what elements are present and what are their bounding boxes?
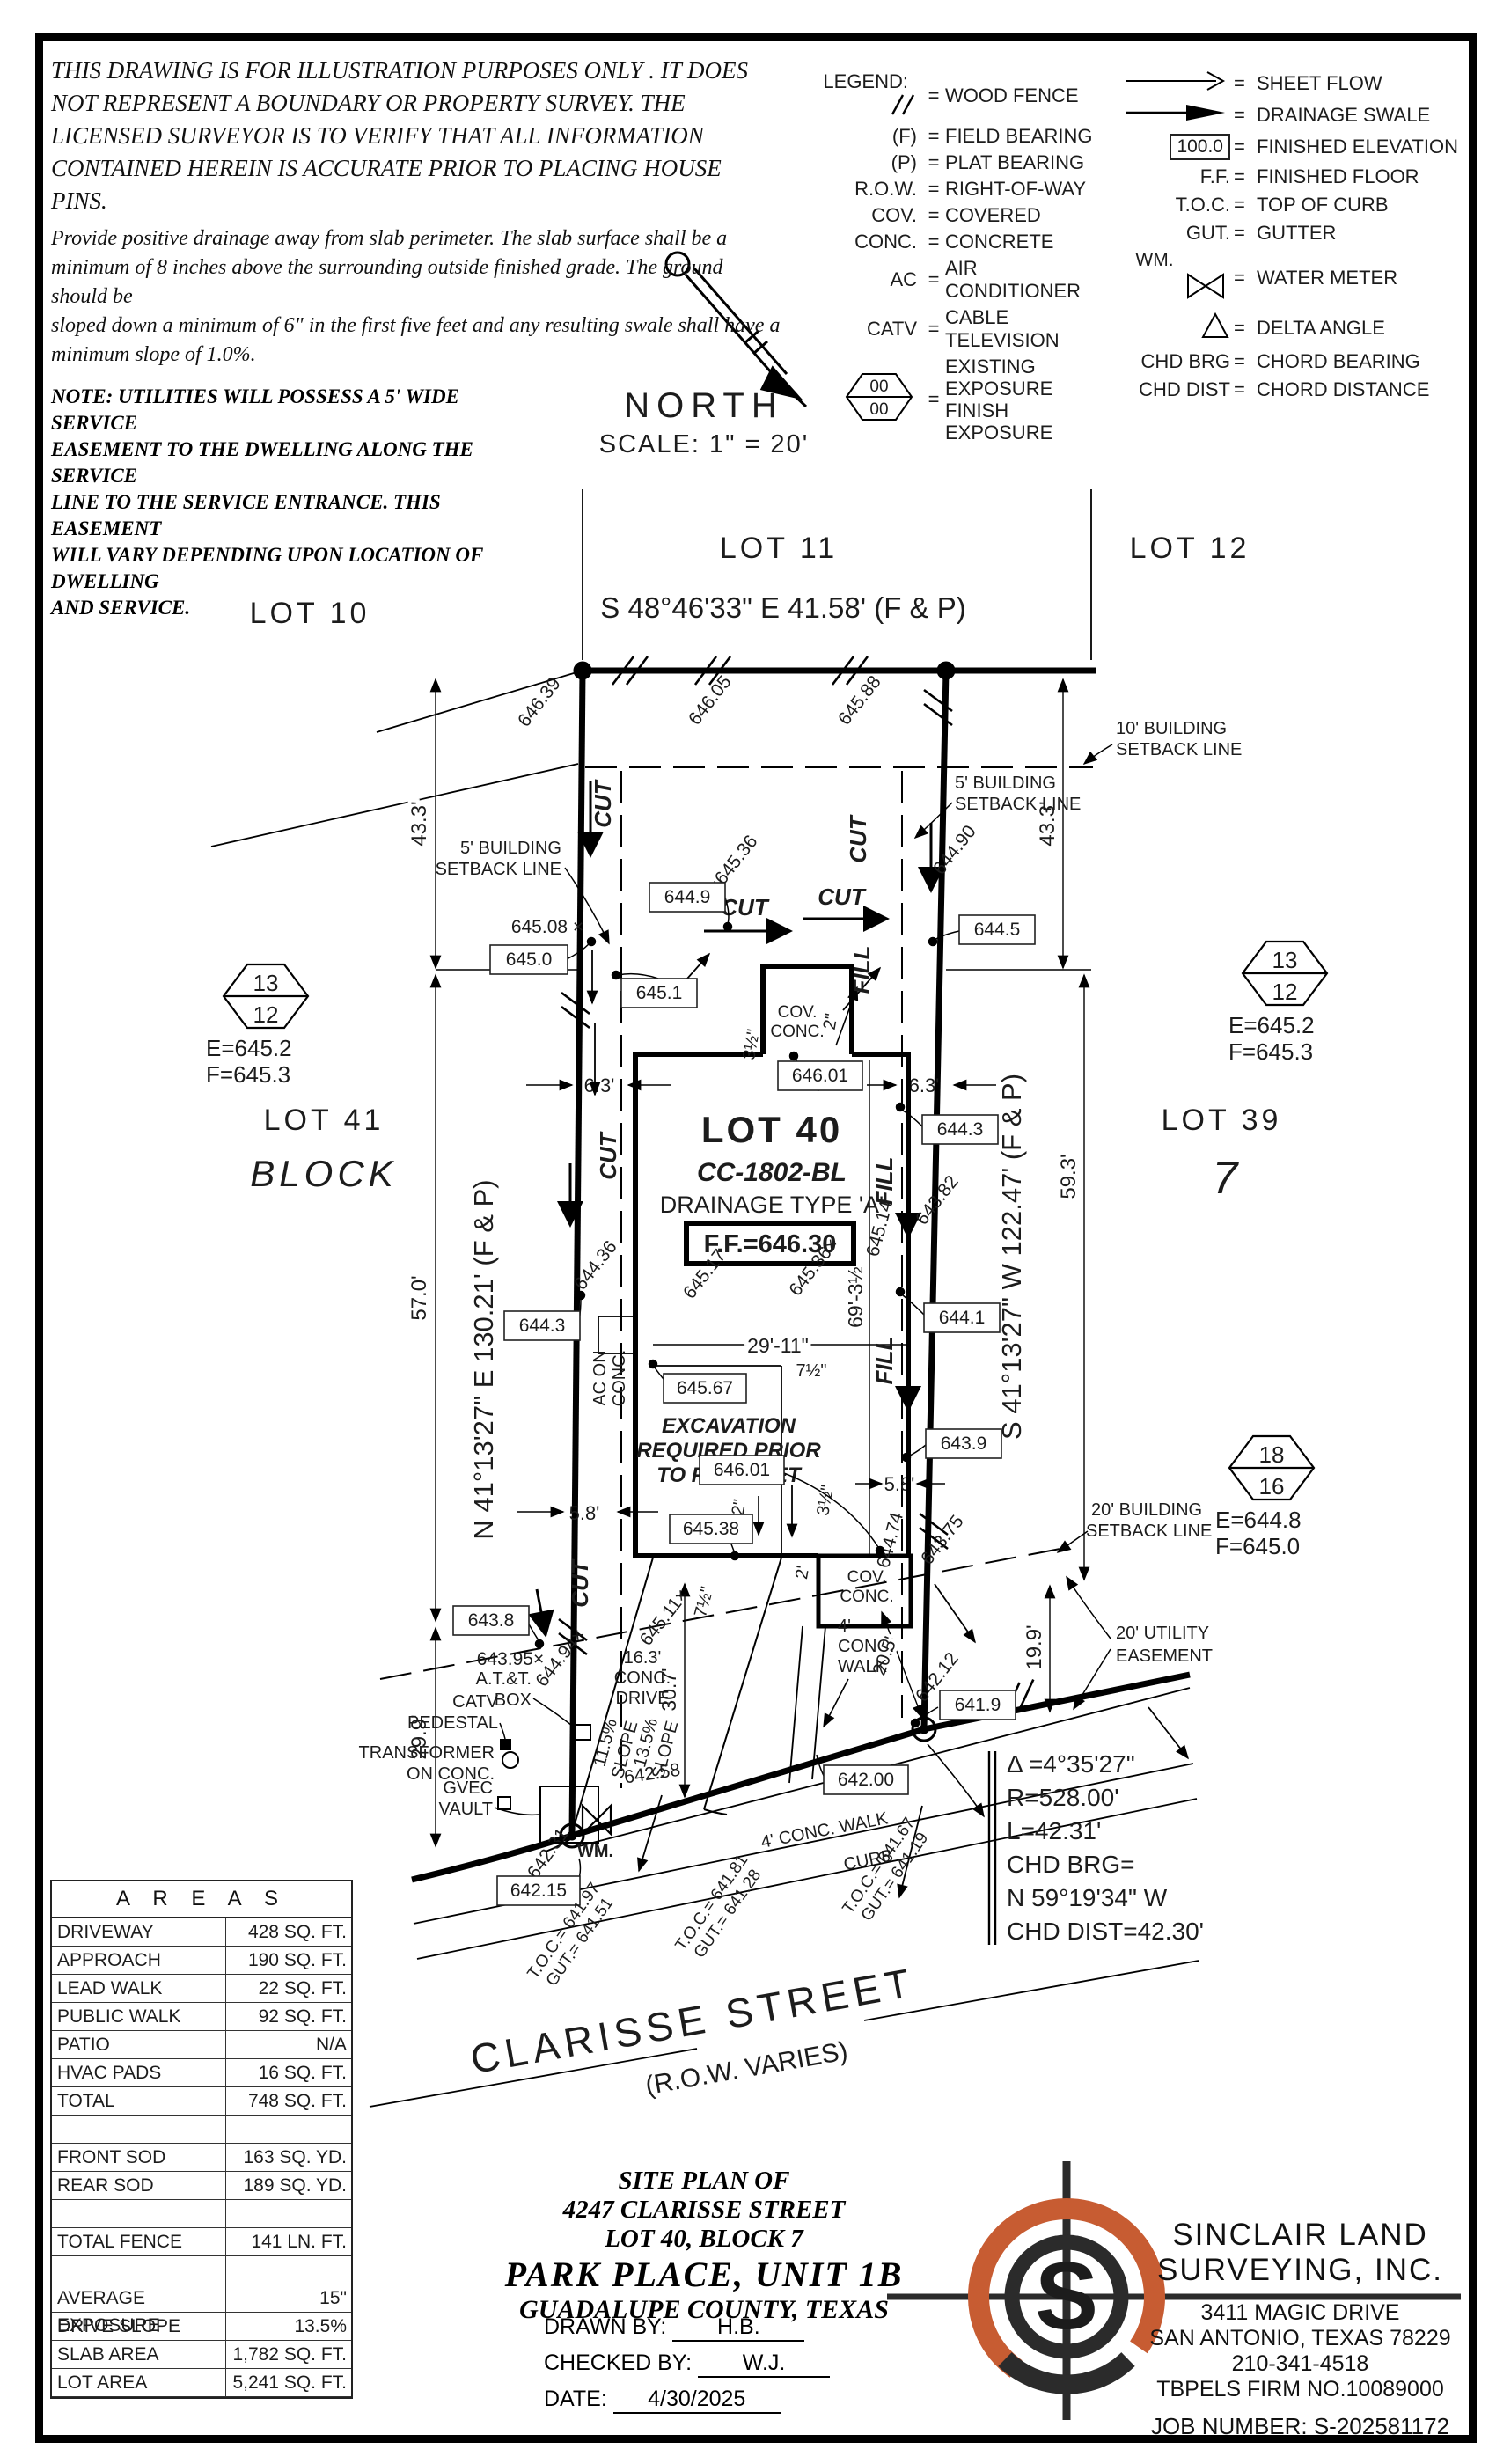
legend-label: WOOD FENCE: [945, 84, 1098, 107]
svg-text:20' BUILDING: 20' BUILDING: [1091, 1500, 1202, 1520]
wood-fence-icon: [887, 93, 917, 116]
table-row: HVAC PADS16 SQ. FT.: [52, 2059, 351, 2087]
fill-label: FILL: [871, 1337, 898, 1385]
legend-label: CHORD BEARING: [1257, 350, 1463, 373]
drawn-by-block: DRAWN BY: H.B. CHECKED BY: W.J. DATE: 4/…: [544, 2314, 830, 2423]
table-row: DRIVE SLOPE13.5%: [52, 2313, 351, 2341]
dim: 29'-11": [747, 1334, 809, 1357]
table-row: TOTAL FENCE141 LN. FT.: [52, 2228, 351, 2256]
svg-text:A.T.&T.: A.T.&T.: [476, 1669, 532, 1689]
svg-text:F=645.3: F=645.3: [1228, 1038, 1313, 1065]
cut-label: CUT: [818, 884, 867, 910]
table-row: APPROACH190 SQ. FT.: [52, 1947, 351, 1975]
table-row: REAR SOD189 SQ. YD.: [52, 2172, 351, 2200]
legend-label: RIGHT-OF-WAY: [945, 178, 1098, 201]
drainage-label: DRAINAGE TYPE 'A': [660, 1192, 884, 1218]
table-row: [52, 2256, 351, 2284]
legend-title-and-fence: LEGEND:: [790, 70, 922, 121]
job-number: JOB NUMBER: S-202581172: [1135, 2413, 1465, 2440]
cov-conc-top: COV.: [778, 1003, 818, 1022]
legend-sym: CHD DIST: [1102, 378, 1234, 401]
svg-text:18: 18: [1259, 1441, 1285, 1468]
cut-label: CUT: [567, 1558, 593, 1608]
legend-label: CABLE TELEVISION: [945, 306, 1098, 352]
bearing-left: N 41°13'27" E 130.21' (F & P): [468, 1179, 499, 1539]
svg-text:10' BUILDING: 10' BUILDING: [1116, 719, 1227, 738]
cut-label: CUT: [590, 779, 616, 828]
svg-text:CHD BRG=: CHD BRG=: [1007, 1851, 1134, 1878]
spot: 646.39: [514, 674, 565, 731]
legend-label: PLAT BEARING: [945, 151, 1098, 174]
legend-sym: T.O.C.: [1102, 194, 1234, 216]
dim-2ft: 2': [792, 1565, 813, 1581]
legend-sym: CATV: [790, 318, 922, 341]
svg-text:641.9: 641.9: [955, 1695, 1001, 1715]
svg-text:GVEC: GVEC: [443, 1778, 493, 1798]
legend-label: DELTA ANGLE: [1257, 317, 1463, 340]
svg-text:BOX: BOX: [495, 1690, 532, 1710]
dim-2in: 2": [820, 1012, 842, 1031]
model-label: CC-1802-BL: [697, 1158, 847, 1187]
svg-text:644.3: 644.3: [937, 1119, 984, 1140]
firm-phone: 210-341-4518: [1135, 2351, 1465, 2377]
legend-sym: GUT.: [1102, 222, 1234, 245]
svg-text:646.01: 646.01: [792, 1066, 848, 1086]
svg-text:13: 13: [253, 970, 279, 996]
cut-label: CUT: [595, 1131, 621, 1180]
svg-text:E=645.2: E=645.2: [206, 1035, 292, 1061]
legend-label: DRAINAGE SWALE: [1257, 104, 1463, 127]
exposure-labels: EXISTING EXPOSUREFINISH EXPOSURE: [945, 356, 1098, 444]
disclaimer-block: THIS DRAWING IS FOR ILLUSTRATION PURPOSE…: [51, 55, 781, 621]
svg-text:643.8: 643.8: [468, 1610, 515, 1631]
svg-text:5' BUILDING: 5' BUILDING: [955, 774, 1056, 793]
svg-text:CATV: CATV: [452, 1692, 499, 1712]
cov-conc-bot: COV.: [847, 1568, 887, 1587]
svg-text:N 59°19'34" W: N 59°19'34" W: [1007, 1884, 1168, 1911]
svg-text:E=644.8: E=644.8: [1215, 1507, 1302, 1533]
firm-address: 3411 MAGIC DRIVE: [1135, 2300, 1465, 2326]
legend-label: FINISHED ELEVATION: [1257, 136, 1463, 158]
excavation-note: EXCAVATION: [662, 1414, 796, 1438]
table-row: PATION/A: [52, 2031, 351, 2059]
svg-text:SETBACK LINE: SETBACK LINE: [1086, 1522, 1212, 1541]
firm-name: SURVEYING, INC.: [1135, 2253, 1465, 2288]
svg-text:645.38: 645.38: [683, 1519, 739, 1539]
checked-by-value: W.J.: [698, 2350, 830, 2378]
table-row: TOTAL748 SQ. FT.: [52, 2087, 351, 2116]
legend-sym: COV.: [790, 204, 922, 227]
spot: 646.05: [685, 672, 736, 730]
svg-text:644.1: 644.1: [939, 1308, 986, 1328]
sheet: NORTH SCALE: 1" = 20' LOT 11 LOT 12 LOT …: [0, 0, 1496, 2464]
svg-text:00: 00: [869, 378, 888, 396]
fill-label: FILL: [871, 1157, 898, 1206]
firm-name: SINCLAIR LAND: [1135, 2218, 1465, 2253]
table-row: [52, 2200, 351, 2228]
svg-text:12: 12: [1272, 979, 1298, 1005]
dim: 19.9': [1023, 1624, 1046, 1669]
svg-text:WM.: WM.: [577, 1842, 613, 1861]
areas-table: A R E A S DRIVEWAY428 SQ. FT. APPROACH19…: [50, 1880, 353, 2399]
spot: 644.90: [929, 822, 980, 879]
firm-info: SINCLAIR LAND SURVEYING, INC. 3411 MAGIC…: [1135, 2218, 1465, 2440]
svg-text:642.15: 642.15: [510, 1881, 567, 1901]
legend-label: CONCRETE: [945, 231, 1098, 253]
svg-text:L=42.31': L=42.31': [1007, 1817, 1101, 1844]
svg-text:642.00: 642.00: [838, 1770, 894, 1790]
drawn-by-value: H.B.: [672, 2314, 804, 2342]
walk-label: 4' CONC. WALK: [759, 1808, 891, 1852]
svg-text:645.0: 645.0: [506, 950, 553, 970]
legend-label: WATER METER: [1257, 267, 1463, 290]
legend-label: GUTTER: [1257, 222, 1463, 245]
date-value: 4/30/2025: [613, 2387, 781, 2414]
svg-text:644.5: 644.5: [974, 920, 1021, 940]
svg-text:645.67: 645.67: [677, 1378, 733, 1398]
svg-text:20' UTILITY: 20' UTILITY: [1116, 1624, 1209, 1643]
svg-text:644.3: 644.3: [519, 1316, 566, 1336]
svg-text:DRIVE: DRIVE: [615, 1689, 669, 1708]
curve-data: Δ =4°35'27" R=528.00' L=42.31' CHD BRG= …: [928, 1744, 1204, 1945]
svg-text:CHD DIST=42.30': CHD DIST=42.30': [1007, 1918, 1204, 1945]
svg-text:F=645.0: F=645.0: [1215, 1533, 1300, 1559]
svg-text:R=528.00': R=528.00': [1007, 1784, 1119, 1811]
svg-text:643.9: 643.9: [941, 1434, 987, 1454]
svg-text:5' BUILDING: 5' BUILDING: [460, 839, 561, 858]
dim: 6.3': [584, 1074, 615, 1096]
table-row: PUBLIC WALK92 SQ. FT.: [52, 2003, 351, 2031]
dim-7half: 7½": [796, 1361, 827, 1381]
svg-text:CONC.: CONC.: [614, 1668, 671, 1688]
sheet-flow-icon: [1102, 70, 1234, 97]
lot12-label: LOT 12: [1130, 532, 1250, 565]
spot: 645.88: [834, 672, 885, 730]
water-meter-icon: WM.: [1102, 250, 1234, 306]
legend-right: =SHEET FLOW =DRAINAGE SWALE 100.0 =FINIS…: [1102, 70, 1463, 401]
disclaimer-paragraph: THIS DRAWING IS FOR ILLUSTRATION PURPOSE…: [51, 55, 781, 217]
svg-text:F=645.3: F=645.3: [206, 1061, 290, 1088]
legend-label: FINISHED FLOOR: [1257, 165, 1463, 188]
table-row: DRIVEWAY428 SQ. FT.: [52, 1918, 351, 1947]
legend-label: CHORD DISTANCE: [1257, 378, 1463, 401]
dim: 5.8': [569, 1502, 600, 1524]
svg-text:SETBACK LINE: SETBACK LINE: [1116, 740, 1242, 759]
exposure-hexagon-icon: 0000: [790, 369, 922, 430]
cov-conc-bot: CONC.: [840, 1588, 893, 1606]
finished-elevation-symbol: 100.0: [1102, 134, 1234, 160]
legend-label: SHEET FLOW: [1257, 72, 1463, 95]
svg-text:WALK: WALK: [838, 1657, 888, 1676]
svg-text:AC ON: AC ON: [590, 1350, 610, 1405]
spot: 642.31: [524, 1824, 573, 1882]
legend-sym: R.O.W.: [790, 178, 922, 201]
legend-sym: CONC.: [790, 231, 922, 253]
svg-text:EASEMENT: EASEMENT: [1116, 1646, 1213, 1666]
legend-sym: (P): [790, 151, 922, 174]
drainage-note: Provide positive drainage away from slab…: [51, 224, 781, 370]
areas-title: A R E A S: [52, 1881, 351, 1918]
svg-text:4': 4': [838, 1617, 851, 1636]
checked-by-label: CHECKED BY:: [544, 2350, 692, 2375]
svg-text:PEDESTAL: PEDESTAL: [407, 1713, 498, 1733]
svg-text:CONC.: CONC.: [838, 1637, 894, 1656]
lot40-label: LOT 40: [701, 1109, 842, 1150]
dim: 69'-3½": [844, 1259, 867, 1328]
legend-label: TOP OF CURB: [1257, 194, 1463, 216]
spot: 645.08 ×: [511, 917, 583, 937]
lot39-label: LOT 39: [1162, 1104, 1282, 1137]
legend-sym: F.F.: [1102, 165, 1234, 188]
table-row: FRONT SOD163 SQ. YD.: [52, 2144, 351, 2172]
svg-text:TRANSFORMER: TRANSFORMER: [359, 1743, 495, 1763]
legend-label: AIR CONDITIONER: [945, 257, 1098, 303]
svg-text:13: 13: [1272, 947, 1298, 973]
legend-label: FIELD BEARING: [945, 125, 1098, 148]
table-row: LOT AREA5,241 SQ. FT.: [52, 2369, 351, 2397]
dim: 59.3': [1057, 1154, 1081, 1199]
block-number: 7: [1213, 1153, 1240, 1204]
spot: 643.75: [917, 1512, 968, 1569]
svg-text:SETBACK LINE: SETBACK LINE: [436, 860, 561, 879]
dim-7half: 7½": [691, 1585, 717, 1619]
svg-text:VAULT: VAULT: [439, 1800, 494, 1819]
utilities-note: NOTE: UTILITIES WILL POSSESS A 5' WIDE S…: [51, 384, 544, 621]
svg-text:16: 16: [1259, 1473, 1285, 1500]
legend-label: COVERED: [945, 204, 1098, 227]
drawn-by-label: DRAWN BY:: [544, 2314, 666, 2339]
date-label: DATE:: [544, 2387, 607, 2411]
svg-text:Δ =4°35'27": Δ =4°35'27": [1007, 1750, 1135, 1778]
svg-text:12: 12: [253, 1001, 279, 1028]
svg-text:16.3': 16.3': [624, 1648, 662, 1668]
legend-sym: AC: [790, 268, 922, 291]
svg-text:00: 00: [869, 400, 888, 419]
block-word: BLOCK: [250, 1153, 397, 1194]
svg-text:E=645.2: E=645.2: [1228, 1012, 1315, 1038]
firm-address: SAN ANTONIO, TEXAS 78229: [1135, 2326, 1465, 2351]
svg-text:CONC.: CONC.: [610, 1350, 629, 1406]
svg-text:SETBACK LINE: SETBACK LINE: [955, 795, 1081, 814]
cut-label: CUT: [845, 814, 871, 863]
lot41-label: LOT 41: [264, 1104, 385, 1137]
spot: 643.95×: [477, 1649, 545, 1669]
svg-text:645.1: 645.1: [636, 983, 683, 1003]
bearing-right: S 41°13'27" W 122.47' (F & P): [996, 1074, 1027, 1440]
table-row: LEAD WALK22 SQ. FT.: [52, 1975, 351, 2003]
cov-conc-top: CONC.: [770, 1023, 824, 1041]
dim: 57.0': [407, 1275, 431, 1320]
legend-sym: (F): [790, 125, 922, 148]
svg-text:646.01: 646.01: [714, 1460, 770, 1480]
table-row: [52, 2116, 351, 2144]
legend-title: LEGEND:: [823, 70, 908, 92]
legend-sym: CHD BRG: [1102, 350, 1234, 373]
dim: 43.3': [407, 801, 431, 846]
table-row: SLAB AREA1,782 SQ. FT.: [52, 2341, 351, 2369]
fill-label: FILL: [848, 946, 875, 994]
firm-number: TBPELS FIRM NO.10089000: [1135, 2377, 1465, 2402]
delta-angle-icon: [1102, 312, 1234, 345]
svg-text:644.9: 644.9: [664, 887, 711, 907]
legend-left: LEGEND: =WOOD FENCE (F)=FIELD BEARING (P…: [790, 70, 1098, 444]
dim: 6.3': [909, 1074, 940, 1096]
drainage-swale-icon: [1102, 102, 1234, 128]
logo-s: S: [1035, 2242, 1098, 2349]
table-row: AVERAGE EXPOSURE15": [52, 2284, 351, 2313]
